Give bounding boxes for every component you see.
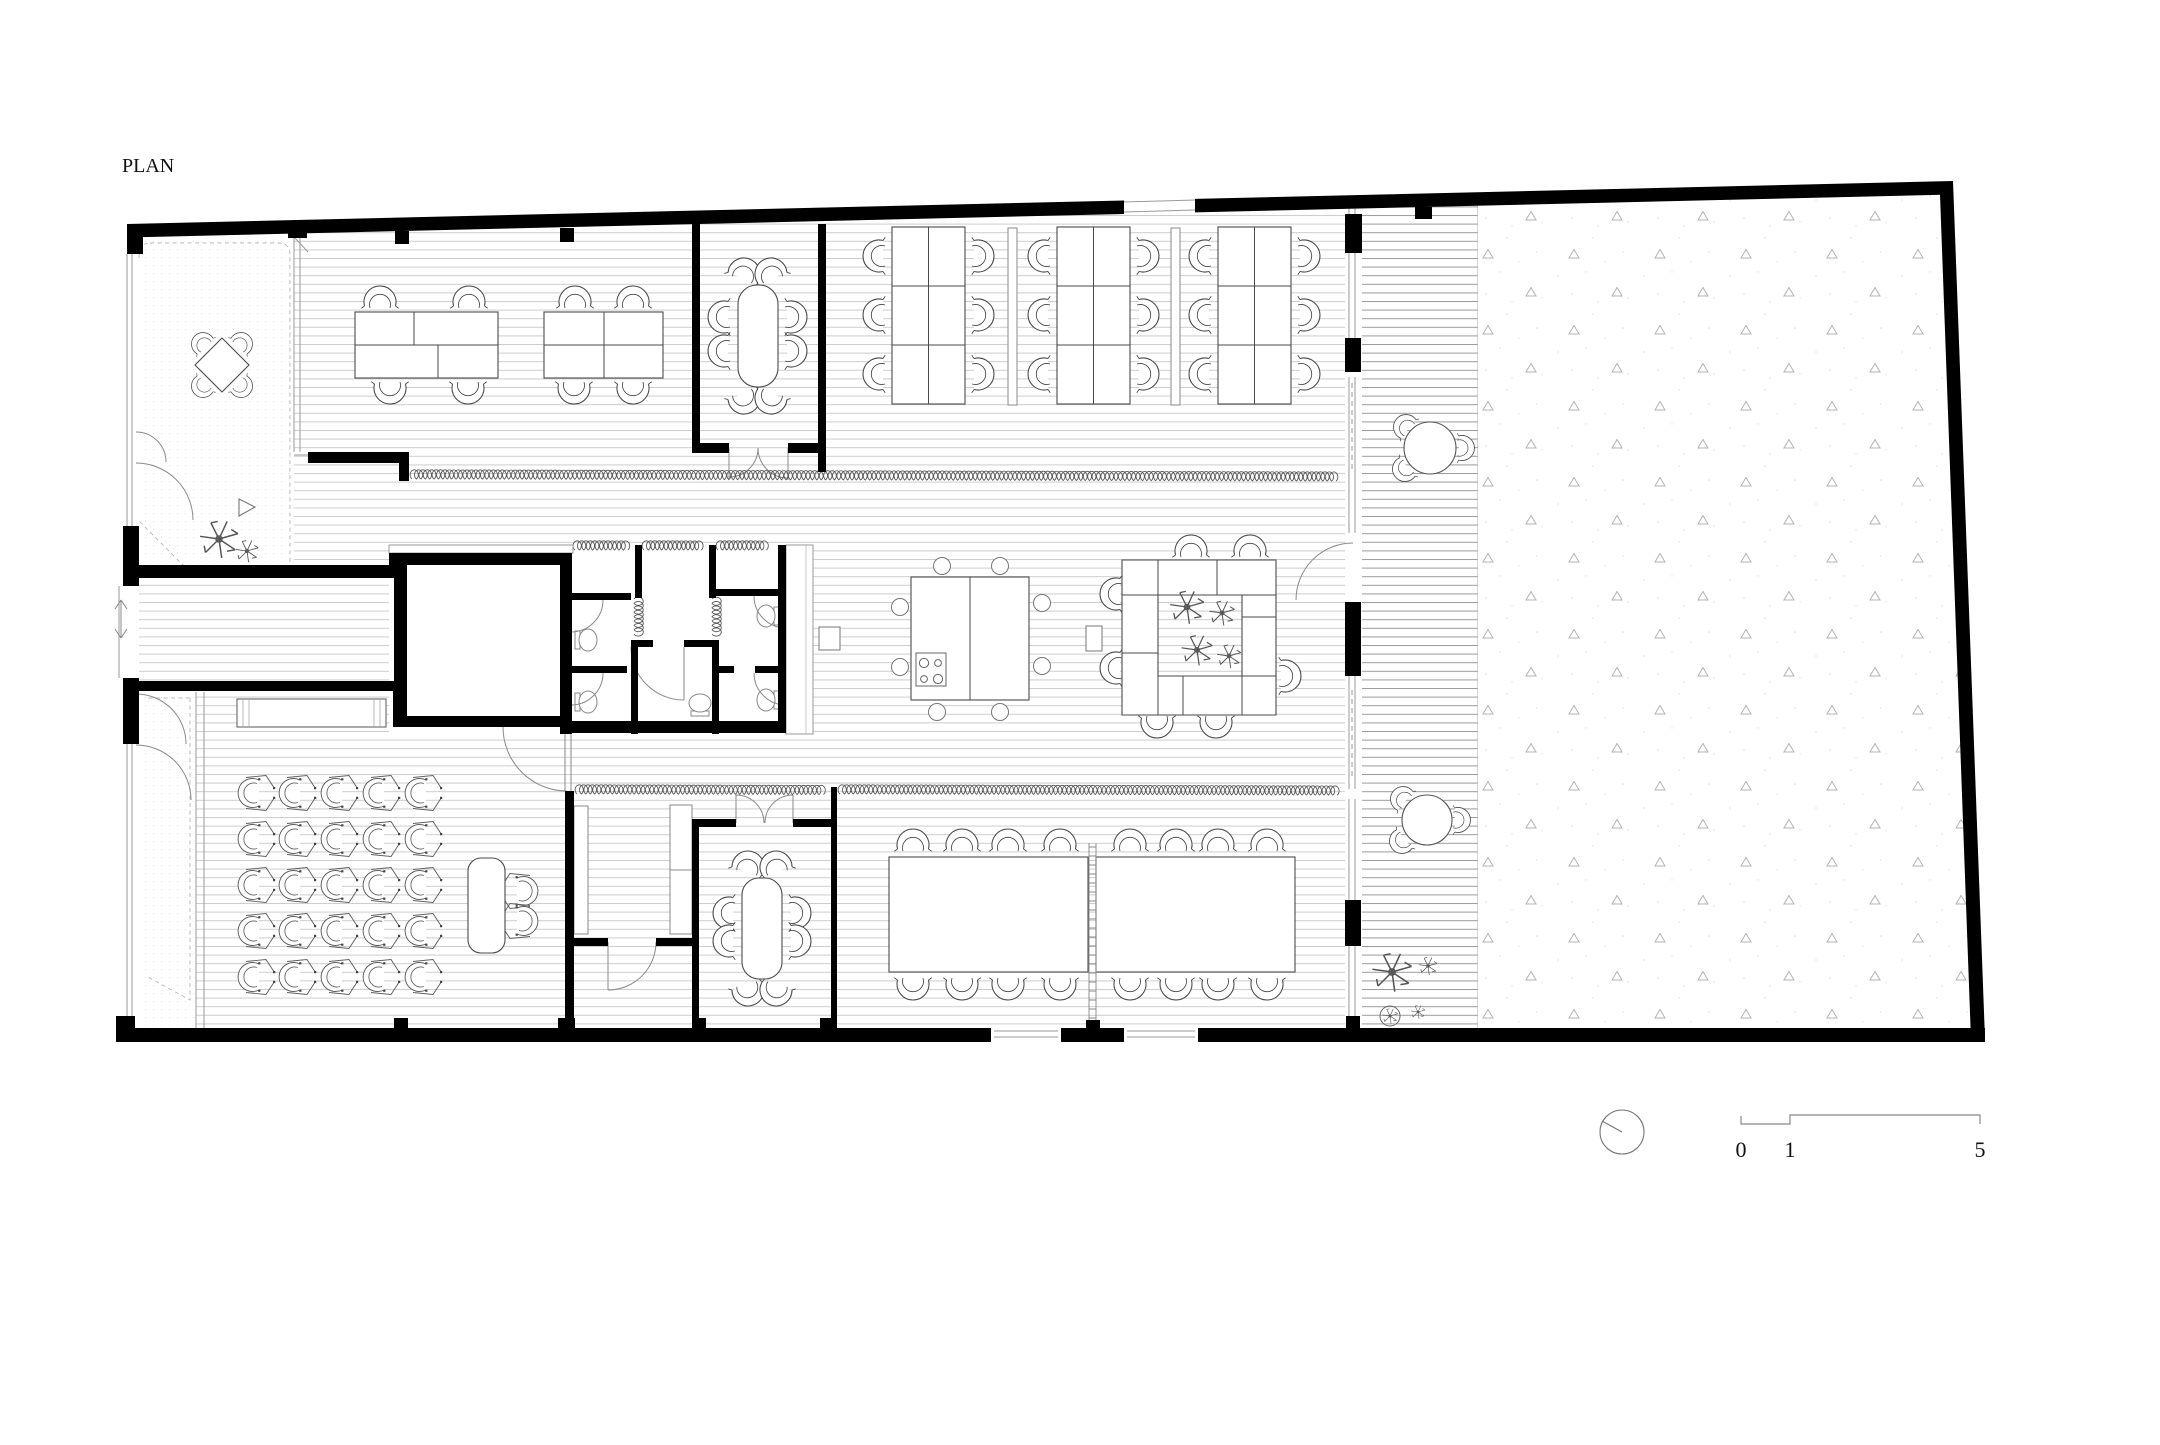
svg-text:1: 1 xyxy=(1785,1137,1796,1162)
svg-text:0: 0 xyxy=(1736,1137,1747,1162)
svg-text:5: 5 xyxy=(1975,1137,1986,1162)
svg-text:PLAN: PLAN xyxy=(122,155,174,177)
